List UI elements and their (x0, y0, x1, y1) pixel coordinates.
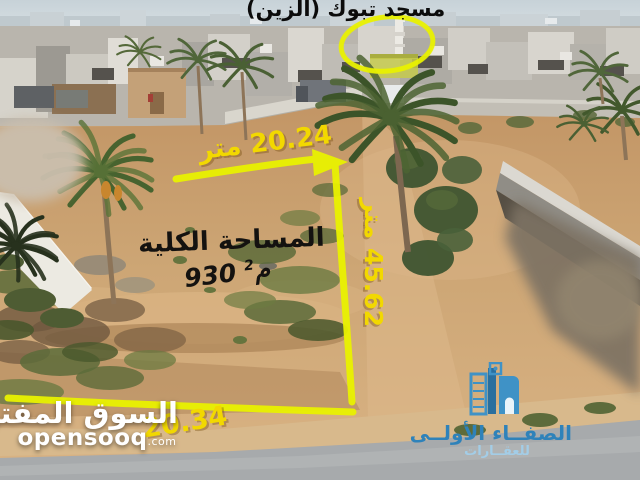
side-dimension-label: 45.62 متر (359, 198, 388, 327)
watermark-arabic-name: السوق المفتوح (16, 398, 178, 428)
agency-subtitle: للعقــارات (422, 444, 572, 459)
watermark-latin-name: opensooq.com (16, 428, 178, 449)
land-listing-photo: مسجد تبوك (الزين) 20.24 متر 45.62 متر 20… (0, 0, 640, 480)
opensooq-watermark: السوق المفتوح opensooq.com (16, 398, 178, 449)
agency-name: الصفــاء الأولــى (422, 422, 572, 444)
buildings-logo-icon (466, 362, 528, 420)
mosque-label: مسجد تبوك (الزين) (246, 0, 445, 21)
agency-logo: الصفــاء الأولــى للعقــارات (422, 362, 572, 459)
